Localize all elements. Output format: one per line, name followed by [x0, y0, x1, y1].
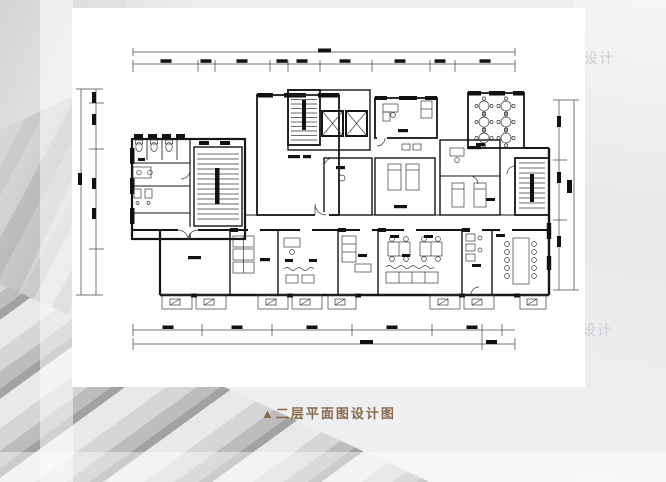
caption-marker-icon: ▲ [261, 406, 276, 421]
elevator-icon [346, 111, 367, 136]
floor-plan-card [72, 8, 585, 387]
floor-plan-drawing [72, 8, 585, 387]
window-bays [162, 295, 546, 309]
dimension-lines-left [76, 89, 104, 295]
caption: ▲二层平面图设计图 [72, 403, 585, 422]
stair-icon-right [515, 158, 549, 215]
stair-icon-left [194, 147, 242, 226]
background-sheen-right [574, 0, 666, 482]
caption-title: 二层平面图设计图 [276, 406, 396, 421]
watermark-text: 设计 [584, 48, 614, 68]
wall-window-segments [130, 91, 551, 298]
page-background: 设计 设计 [0, 0, 666, 482]
dimension-lines-top [133, 48, 515, 72]
bed-icons [388, 164, 486, 207]
stair-icon-core [288, 90, 320, 145]
door-arcs [178, 138, 515, 295]
dimension-lines-right [553, 100, 579, 290]
meeting-table-icon [505, 238, 537, 284]
toilet-fixtures [133, 140, 173, 205]
bottom-rooms-furniture [233, 234, 482, 283]
dimension-lines-bottom [133, 324, 515, 350]
watermark-text: 设计 [582, 320, 612, 340]
light-overlay-column [40, 0, 73, 482]
background-band-bottom [0, 452, 666, 482]
office-desks [339, 101, 464, 181]
